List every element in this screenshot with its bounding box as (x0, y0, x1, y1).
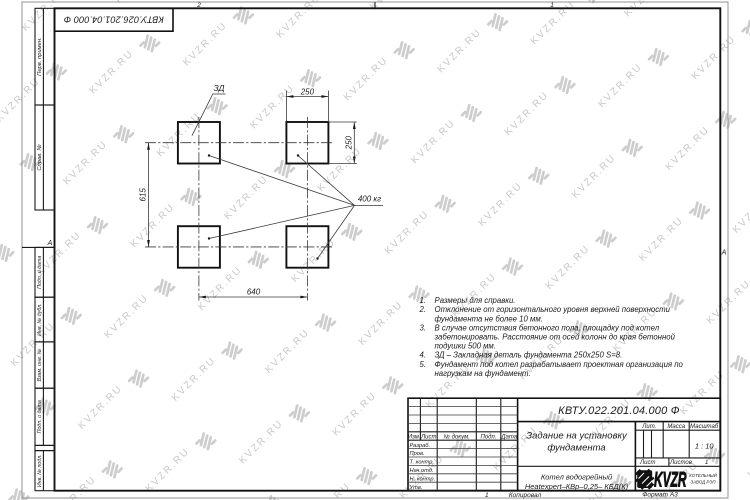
svg-text:KVZR.RU: KVZR.RU (705, 278, 750, 327)
svg-text:KVZR.RU: KVZR.RU (435, 27, 484, 76)
svg-text:KVZR.RU: KVZR.RU (544, 243, 593, 292)
svg-text:KVZR.RU: KVZR.RU (342, 55, 391, 104)
svg-text:KVZR.RU: KVZR.RU (637, 215, 686, 264)
svg-text:Фундамент под котел разрабатыв: Фундамент под котел разрабатывает проект… (435, 360, 684, 369)
svg-text:Подп. и дата: Подп. и дата (37, 256, 43, 289)
svg-text:Копировал: Копировал (509, 492, 542, 499)
svg-text:В случае отсутствия бетонного: В случае отсутствия бетонного пола, площ… (435, 323, 660, 332)
svg-text:KVZR.RU: KVZR.RU (690, 33, 739, 82)
svg-text:КОТЕЛЬНЫЙ: КОТЕЛЬНЫЙ (689, 473, 717, 478)
svg-text:KVZR.RU: KVZR.RU (102, 292, 151, 341)
svg-text:Отклонение от горизонтального: Отклонение от горизонтального уровня вер… (435, 305, 671, 314)
svg-text:KVZR.RU: KVZR.RU (144, 446, 193, 495)
svg-text:фундамента: фундамента (547, 443, 605, 454)
svg-text:Листов: Листов (669, 460, 692, 466)
svg-text:ЗД: ЗД (214, 83, 225, 93)
svg-text:Взам. инв. №: Взам. инв. № (37, 348, 43, 381)
svg-text:ЗАВОД РЭП: ЗАВОД РЭП (690, 480, 716, 485)
svg-text:KVZR.RU: KVZR.RU (596, 61, 645, 110)
svg-text:Справ. №: Справ. № (37, 144, 43, 170)
svg-text:КВТУ.022.201.04.000 Ф: КВТУ.022.201.04.000 Ф (558, 405, 680, 417)
svg-text:Котел водогрейный: Котел водогрейный (541, 473, 613, 482)
svg-text:2.: 2. (419, 305, 427, 314)
svg-text:KVZR: KVZR (654, 468, 687, 491)
svg-text:Инв. № подл.: Инв. № подл. (37, 454, 43, 487)
svg-text:KVZR.RU: KVZR.RU (248, 83, 297, 132)
svg-text:KVZR.RU: KVZR.RU (476, 180, 525, 229)
svg-text:KVZR.RU: KVZR.RU (181, 20, 230, 69)
svg-text:КВТУ.026.201.04.000 Ф: КВТУ.026.201.04.000 Ф (64, 15, 164, 25)
svg-text:Т. контр.: Т. контр. (410, 460, 435, 466)
svg-text:KVZR.RU: KVZR.RU (170, 355, 219, 404)
svg-text:640: 640 (247, 288, 261, 297)
svg-text:Утв.: Утв. (409, 485, 423, 491)
svg-text:Heatexpert–КВр–0,25– КБД(К): Heatexpert–КВр–0,25– КБД(К) (525, 482, 629, 491)
svg-text:А: А (721, 250, 727, 257)
svg-text:KVZR.RU: KVZR.RU (746, 431, 750, 480)
svg-text:KVZR.RU: KVZR.RU (0, 76, 43, 125)
svg-text:Нач.отд.: Нач.отд. (410, 468, 434, 474)
svg-text:1: 1 (705, 460, 708, 466)
svg-text:Лист: Лист (420, 434, 436, 440)
svg-text:KVZR.RU: KVZR.RU (663, 124, 712, 173)
svg-text:KVZR.RU: KVZR.RU (88, 48, 137, 97)
svg-text:615: 615 (139, 188, 148, 202)
svg-text:забетонировать. Расстояние от: забетонировать. Расстояние от осей колон… (434, 333, 676, 342)
svg-text:Пров.: Пров. (410, 451, 425, 457)
svg-text:Разраб.: Разраб. (410, 443, 431, 449)
svg-text:KVZR.RU: KVZR.RU (622, 0, 671, 19)
svg-text:KVZR.RU: KVZR.RU (731, 187, 750, 236)
svg-text:1.: 1. (420, 296, 427, 305)
svg-text:KVZR.RU: KVZR.RU (383, 208, 432, 257)
svg-text:KVZR.RU: KVZR.RU (196, 264, 245, 313)
svg-text:KVZR.RU: KVZR.RU (50, 474, 99, 500)
svg-text:подушки 500 мм.: подушки 500 мм. (435, 342, 496, 351)
svg-text:5.: 5. (420, 360, 427, 369)
svg-text:Формат А3: Формат А3 (642, 491, 678, 498)
svg-text:250: 250 (344, 135, 353, 150)
svg-text:KVZR.RU: KVZR.RU (20, 0, 69, 34)
svg-text:ЗД – Закладная деталь фундамен: ЗД – Закладная деталь фундамента 250х250… (435, 351, 623, 360)
svg-text:1 : 10: 1 : 10 (695, 442, 715, 451)
svg-text:KVZR.RU: KVZR.RU (331, 390, 380, 439)
svg-text:KVZR.RU: KVZR.RU (275, 0, 324, 40)
svg-text:400 кг: 400 кг (358, 195, 381, 204)
svg-text:KVZR.RU: KVZR.RU (263, 327, 312, 376)
svg-text:KVZR.RU: KVZR.RU (76, 383, 125, 432)
svg-text:KVZR.RU: KVZR.RU (114, 0, 163, 6)
svg-text:Инв. № дубл.: Инв. № дубл. (37, 303, 43, 336)
svg-text:KVZR.RU: KVZR.RU (9, 320, 58, 369)
svg-text:KVZR.RU: KVZR.RU (570, 152, 619, 201)
svg-text:250: 250 (300, 88, 315, 97)
svg-text:Размеры для справки.: Размеры для справки. (435, 296, 516, 305)
svg-text:KVZR.RU: KVZR.RU (357, 299, 406, 348)
svg-text:Дата: Дата (500, 434, 517, 440)
svg-text:Масса: Масса (667, 424, 685, 430)
svg-text:А: А (47, 240, 53, 247)
svg-text:Перв. примен.: Перв. примен. (37, 37, 43, 76)
svg-text:KVZR.RU: KVZR.RU (409, 117, 458, 166)
svg-text:Лит.: Лит. (641, 424, 656, 430)
svg-text:1: 1 (485, 492, 489, 499)
svg-text:KVZR.RU: KVZR.RU (316, 145, 365, 194)
svg-text:KVZR.RU: KVZR.RU (237, 418, 286, 467)
svg-text:KVZR.RU: KVZR.RU (61, 139, 110, 188)
svg-text:Подп.: Подп. (481, 434, 497, 440)
svg-text:Масштаб: Масштаб (690, 424, 719, 430)
svg-text:KVZR.RU: KVZR.RU (129, 201, 178, 250)
svg-text:KVZR.RU: KVZR.RU (155, 111, 204, 160)
svg-text:KVZR.RU: KVZR.RU (503, 89, 552, 138)
svg-text:Лист: Лист (639, 460, 655, 466)
svg-text:4.: 4. (420, 351, 427, 360)
svg-text:фундамента не более 10 мм.: фундамента не более 10 мм. (435, 314, 543, 323)
svg-text:№ докум.: № докум. (443, 433, 469, 440)
svg-text:Подп. и дата: Подп. и дата (37, 400, 43, 433)
svg-text:KVZR.RU: KVZR.RU (222, 173, 271, 222)
svg-text:Н. контр.: Н. контр. (410, 476, 436, 482)
svg-text:Изм.: Изм. (408, 434, 421, 440)
svg-text:нагрузкам на фундамент.: нагрузкам на фундамент. (435, 369, 531, 378)
svg-text:KVZR.RU: KVZR.RU (289, 236, 338, 285)
svg-text:Задание на установку: Задание на установку (526, 431, 628, 442)
svg-text:3.: 3. (420, 323, 427, 332)
